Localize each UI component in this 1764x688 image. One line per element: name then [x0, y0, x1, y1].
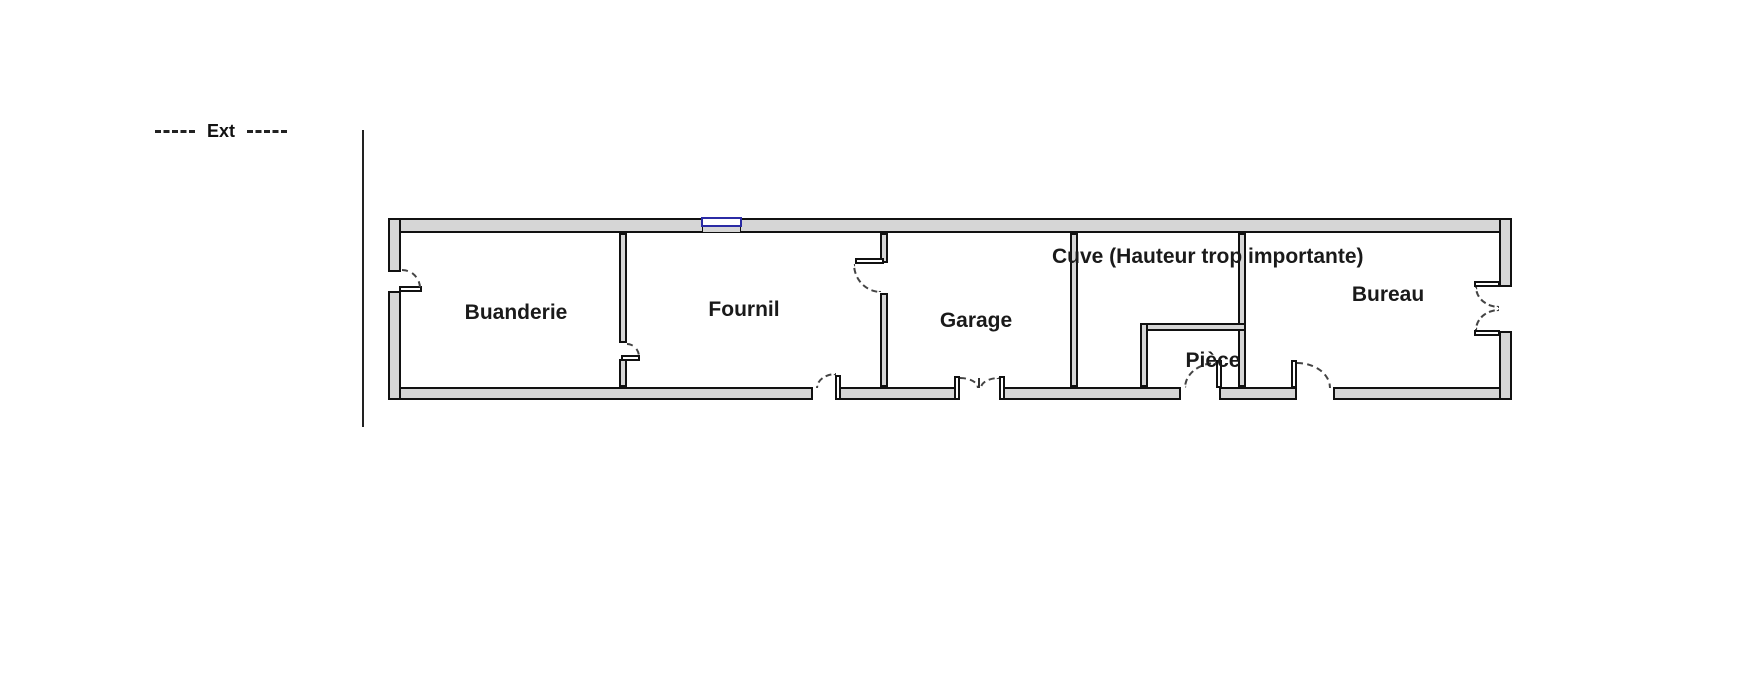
door-garage-center-dash: [978, 378, 980, 388]
wall-buanderie-fournil-upper: [619, 233, 627, 343]
door-fournil-garage-arc: [853, 264, 881, 293]
floor-plan: Ext: [0, 0, 1764, 688]
door-garage-right-leaf: [999, 376, 1005, 400]
room-label-garage: Garage: [940, 309, 1012, 333]
door-bureau-french-top-arc: [1475, 287, 1499, 308]
exterior-wall-top-right: [739, 218, 1512, 233]
wall-piece-left: [1140, 323, 1148, 387]
door-garage-left-arc: [960, 377, 979, 388]
wall-buanderie-fournil-lower: [619, 359, 627, 387]
ext-label: Ext: [207, 121, 235, 142]
exterior-wall-top-left: [388, 218, 704, 233]
exterior-wall-left-upper: [388, 218, 401, 272]
window-sill-wall: [702, 226, 741, 233]
door-bureau-french-bottom-arc: [1475, 309, 1499, 330]
exterior-wall-left-lower: [388, 291, 401, 400]
door-bureau-french-bottom-leaf: [1474, 330, 1500, 336]
window-icon: [701, 217, 742, 227]
room-label-cuve: Cuve (Hauteur trop importante): [1052, 245, 1364, 269]
door-buanderie-exterior-arc: [402, 269, 421, 288]
wall-piece-top: [1140, 323, 1246, 331]
exterior-wall-bottom-2: [838, 387, 957, 400]
wall-fournil-garage-lower: [880, 293, 888, 387]
exterior-wall-bottom-3: [1003, 387, 1181, 400]
exterior-wall-bottom-5: [1333, 387, 1512, 400]
ext-boundary-line: [362, 130, 364, 427]
ext-legend: Ext: [155, 121, 287, 142]
room-label-piece: Pièce: [1186, 349, 1241, 373]
door-buanderie-fournil-arc: [627, 343, 640, 357]
door-fournil-exterior-arc: [816, 373, 836, 388]
door-garage-right-arc: [980, 377, 999, 388]
exterior-wall-bottom-4: [1219, 387, 1297, 400]
ext-dash-left-icon: [155, 130, 195, 133]
room-label-buanderie: Buanderie: [465, 301, 568, 325]
exterior-wall-bottom-1: [388, 387, 813, 400]
room-label-fournil: Fournil: [708, 298, 779, 322]
exterior-wall-right-lower: [1499, 331, 1512, 400]
room-label-bureau: Bureau: [1352, 283, 1424, 307]
exterior-wall-right-upper: [1499, 218, 1512, 287]
ext-dash-right-icon: [247, 130, 287, 133]
door-bureau-bottom-arc: [1297, 362, 1331, 388]
